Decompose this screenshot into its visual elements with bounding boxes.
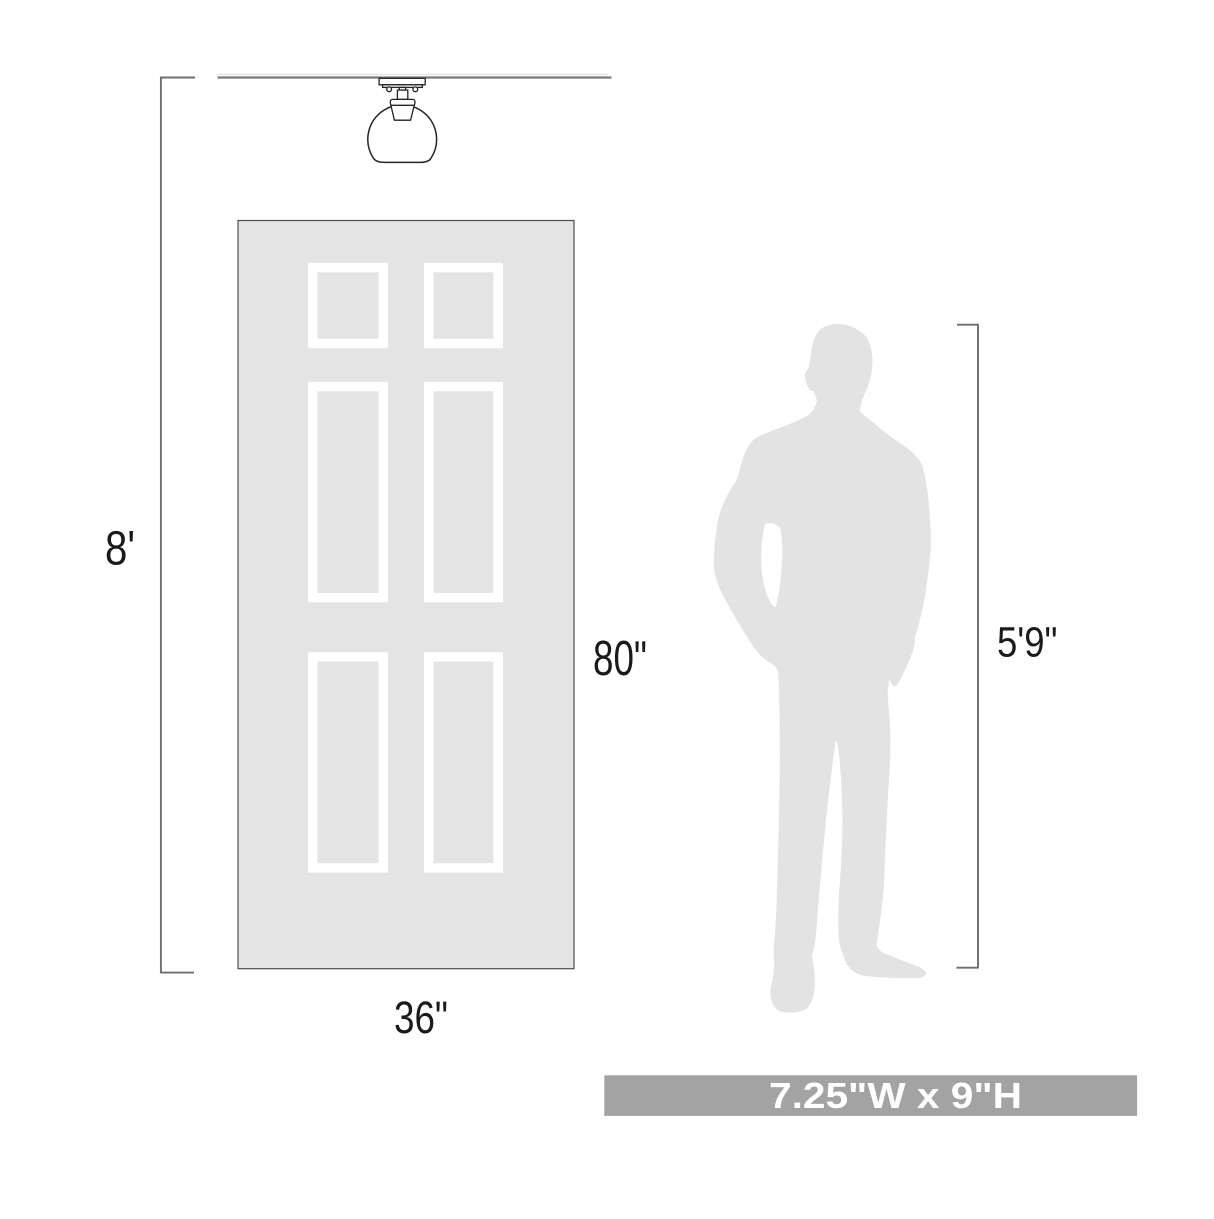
svg-text:80": 80" — [593, 631, 647, 686]
svg-text:7.25"W x 9"H: 7.25"W x 9"H — [769, 1075, 1022, 1116]
svg-text:5'9": 5'9" — [997, 619, 1058, 667]
svg-text:36": 36" — [394, 992, 448, 1043]
svg-text:8': 8' — [105, 522, 135, 576]
